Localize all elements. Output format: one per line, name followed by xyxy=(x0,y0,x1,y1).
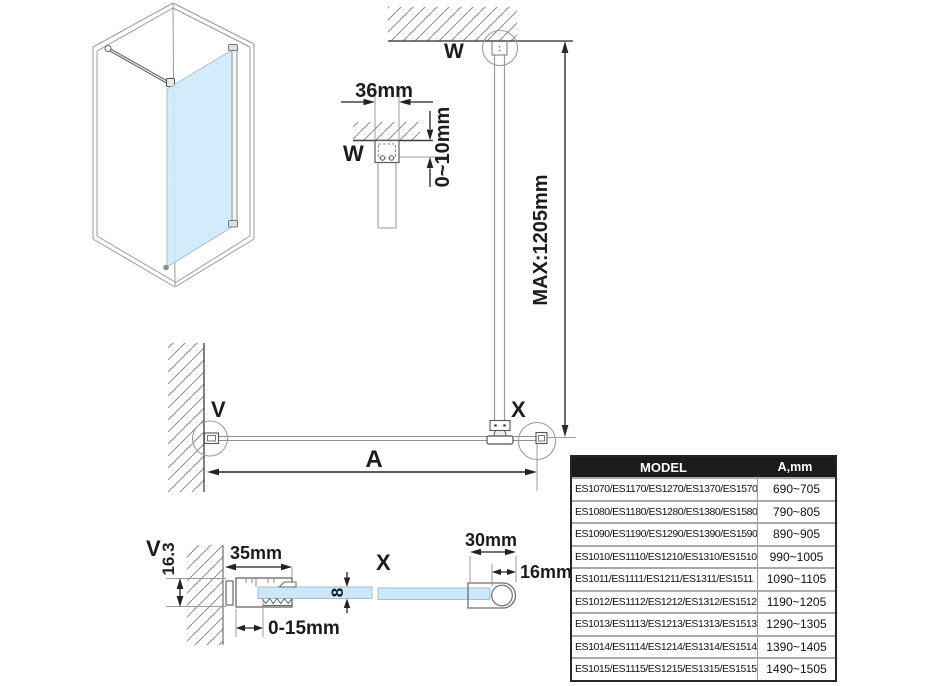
wall-profile-detail-v: 16.3 V 35mm 0-15mm 8 xyxy=(146,536,372,645)
table-row: ES1015/ES1115/ES1215/ES1315/ES1515 1490~… xyxy=(572,657,835,680)
dim-max-height: MAX:1205mm xyxy=(530,174,552,305)
label-v-detail: V xyxy=(146,536,161,561)
elevation-view: W MAX:1205mm xyxy=(388,7,576,438)
dim-adjust-range: 0-15mm xyxy=(268,618,340,639)
plan-view: V X A xyxy=(168,343,556,492)
label-w-anchor: W xyxy=(444,40,464,63)
a-value-cell: 1390~1405 xyxy=(758,637,835,658)
table-row: ES1080/ES1180/ES1280/ES1380/ES1580 790~8… xyxy=(572,500,835,523)
a-value-cell: 890~905 xyxy=(758,524,835,545)
dim-bracket-width: 36mm xyxy=(355,80,413,102)
end-profile-detail-x: X 30mm 16mm xyxy=(376,530,572,608)
end-cap xyxy=(536,433,547,444)
dim-glass-thickness: 8 xyxy=(328,588,347,597)
label-v-anchor: V xyxy=(211,397,226,422)
model-cell: ES1015/ES1115/ES1215/ES1315/ES1515 xyxy=(572,659,758,680)
dim-ceiling-gap: 0~10mm xyxy=(432,107,454,188)
dim-end-profile-width: 30mm xyxy=(465,530,517,550)
dim-profile-width: 35mm xyxy=(230,543,282,563)
a-value-cell: 1190~1205 xyxy=(758,592,835,613)
dim-profile-height: 16.3 xyxy=(159,542,178,575)
wall-hatch-detail xyxy=(187,545,223,645)
wall-bracket xyxy=(205,433,219,444)
wall-profile-3d xyxy=(232,47,237,227)
table-row: ES1012/ES1112/ES1212/ES1312/ES1512 1190~… xyxy=(572,590,835,613)
a-value-cell: 1490~1505 xyxy=(758,659,835,680)
a-value-cell: 690~705 xyxy=(758,479,835,500)
a-value-cell: 1290~1305 xyxy=(758,614,835,635)
a-value-cell: 990~1005 xyxy=(758,547,835,568)
ceiling-anchor-bracket xyxy=(492,42,507,56)
table-row: ES1014/ES1114/ES1214/ES1314/ES1514 1390~… xyxy=(572,635,835,658)
glass-section-x xyxy=(378,588,490,600)
bar-panel-clamp xyxy=(487,421,513,445)
model-cell: ES1080/ES1180/ES1280/ES1380/ES1580 xyxy=(572,502,758,523)
table-row: ES1090/ES1190/ES1290/ES1390/ES1590 890~9… xyxy=(572,522,835,545)
bar-wall-fitting xyxy=(105,46,111,52)
model-cell: ES1010/ES1110/ES1210/ES1310/ES1510 xyxy=(572,547,758,568)
model-spec-table: MODEL A,mm ES1070/ES1170/ES1270/ES1370/E… xyxy=(570,455,837,682)
glass-section-v xyxy=(258,587,372,599)
model-cell: ES1014/ES1114/ES1214/ES1314/ES1514 xyxy=(572,637,758,658)
model-cell: ES1012/ES1112/ES1212/ES1312/ES1512 xyxy=(572,592,758,613)
ceiling-hatch-right xyxy=(388,7,517,41)
table-header-row: MODEL A,mm xyxy=(572,457,835,477)
a-value-cell: 790~805 xyxy=(758,502,835,523)
model-cell: ES1011/ES1111/ES1211/ES1311/ES1511 xyxy=(572,569,758,590)
a-value-cell: 1090~1105 xyxy=(758,569,835,590)
ceiling-bracket-detail-w: 36mm 0~10mm W xyxy=(341,80,454,228)
isometric-view xyxy=(93,3,254,287)
table-row: ES1013/ES1113/ES1213/ES1313/ES1513 1290~… xyxy=(572,612,835,635)
label-x-detail: X xyxy=(376,550,391,575)
table-row: ES1070/ES1170/ES1270/ES1370/ES1570 690~7… xyxy=(572,477,835,500)
label-w-detail: W xyxy=(343,141,364,166)
dim-a-label: A xyxy=(365,446,382,473)
label-x-anchor: X xyxy=(511,397,526,422)
wall-hatch xyxy=(168,343,204,492)
model-cell: ES1070/ES1170/ES1270/ES1370/ES1570 xyxy=(572,479,758,500)
table-header-a: A,mm xyxy=(755,460,835,474)
table-row: ES1011/ES1111/ES1211/ES1311/ES1511 1090~… xyxy=(572,567,835,590)
ceiling-hatch xyxy=(353,122,420,140)
model-cell: ES1013/ES1113/ES1213/ES1313/ES1513 xyxy=(572,614,758,635)
model-cell: ES1090/ES1190/ES1290/ES1390/ES1590 xyxy=(572,524,758,545)
table-row: ES1010/ES1110/ES1210/ES1310/ES1510 990~1… xyxy=(572,545,835,568)
table-header-model: MODEL xyxy=(572,460,755,475)
shower-screen-technical-drawing: 36mm 0~10mm W W MAX:1205mm xyxy=(0,0,928,686)
dim-end-profile-depth: 16mm xyxy=(520,562,572,582)
glass-panel-3d xyxy=(167,50,232,267)
